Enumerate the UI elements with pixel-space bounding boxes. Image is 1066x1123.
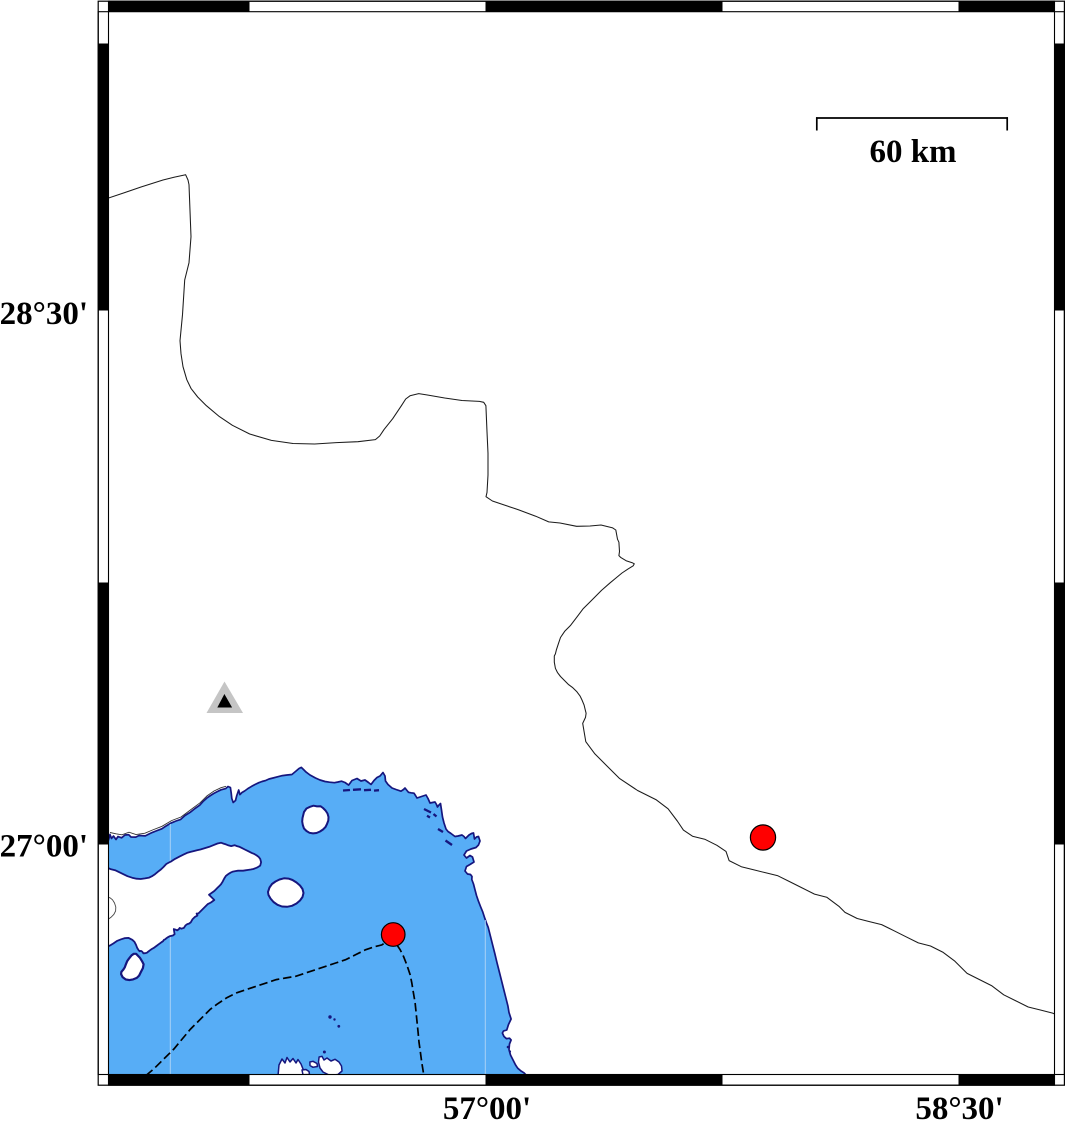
svg-text:58°30': 58°30' [915, 1091, 1003, 1123]
svg-text:57°00': 57°00' [443, 1091, 531, 1123]
svg-text:60 km: 60 km [869, 134, 956, 170]
svg-text:27°00': 27°00' [0, 829, 88, 865]
svg-text:28°30': 28°30' [0, 296, 88, 332]
